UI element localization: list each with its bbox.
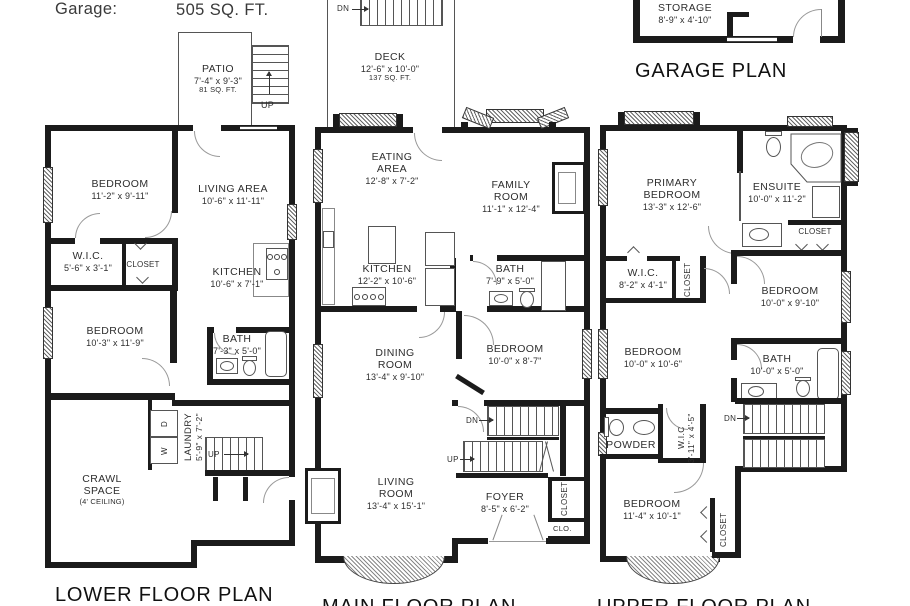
window [240,126,277,130]
wall [820,36,845,43]
wall [45,393,175,400]
stair-rail [487,437,559,440]
fridge [425,232,455,266]
wall [456,311,462,359]
closet-door-icon [816,238,829,251]
room-dims: 13'-3" x 12'-6" [636,202,708,212]
burner-icon [274,269,280,275]
door-arc [464,315,494,345]
room-name: BATH [741,354,813,366]
room-dims: 10'-6" x 7'-1" [206,279,268,289]
window [314,345,322,397]
door-arc [737,256,765,284]
room-name: BEDROOM [79,326,151,338]
wall [396,114,403,127]
stairs-up-label: UP [208,450,220,459]
door-arc [704,268,730,294]
door-arc [145,211,172,238]
wall [243,477,248,501]
bay-window [625,112,693,124]
room-label-wic: W.I.C. 8'-2" x 4'-1" [607,268,679,290]
wall [289,500,295,546]
room-dims: 11'-1" x 12'-4" [473,204,549,214]
bay-window [487,110,543,122]
wall [45,285,178,291]
room-name: FOYER [469,492,541,504]
room-name: BEDROOM [617,347,689,359]
wall [735,250,847,256]
wall [710,498,715,552]
room-name: BEDROOM [754,286,826,298]
room-name: PATIO [182,64,254,76]
room-dims: 8'-5" x 6'-2" [469,504,541,514]
wall [548,477,588,481]
window [583,330,591,378]
wall [315,306,417,312]
bathtub [817,348,839,400]
room-label-bath: BATH 7'-9" x 5'-0" [474,264,546,286]
staircase [743,439,825,468]
washer-label: W [160,443,169,459]
sink-basin [220,361,234,371]
room-label-dining-room: DINING ROOM 13'-4" x 9'-10" [359,348,431,382]
room-dims: 10'-0" x 9'-10" [754,298,826,308]
staircase [743,404,825,434]
plan-title-upper: UPPER FLOOR PLAN [597,596,811,606]
room-note: 81 SQ. FT. [182,86,254,94]
room-note: (4' CEILING) [66,498,138,506]
room-dims: 8'-9" x 4'-10" [649,15,721,25]
room-label-laundry: LAUNDRY [183,406,194,468]
room-label-foyer: FOYER 8'-5" x 6'-2" [469,492,541,514]
door-arc [263,477,289,503]
closet-door-icon [627,246,640,259]
room-label-patio: PATIO 7'-4" x 9'-3" 81 SQ. FT. [182,64,254,94]
wall [191,540,295,546]
stairs-dn-label: DN [466,416,478,425]
plan-title-main: MAIN FLOOR PLAN [322,596,516,606]
room-label-closet: CLOSET [683,261,692,299]
door-opening [473,255,497,261]
room-label-deck: DECK 12'-6" x 10'-0" 137 SQ. FT. [354,52,426,82]
room-label-closet: CLOSET [560,482,569,516]
up-arrow-icon [460,459,474,460]
wall [456,473,548,478]
burner-icon [362,294,368,300]
room-dims: 13'-4" x 15'-1" [360,501,432,511]
corner-tub [790,133,842,183]
stove [266,248,288,280]
window [599,150,607,205]
room-label-closet: CLOSET [789,228,841,237]
room-name: KITCHEN [206,267,268,279]
room-name: LIVING AREA [195,184,271,196]
wall [207,379,295,385]
wall [455,374,485,395]
staircase [463,441,543,472]
wall [845,181,858,186]
dn-arrow-icon [352,9,368,10]
room-dims: 12'-8" x 7'-2" [356,176,428,186]
up-arrow-icon [269,72,270,94]
room-name: ENSUITE [741,182,813,194]
wall [712,552,741,558]
toilet-tank [765,131,782,136]
closet-door-icon [136,271,149,284]
wall [600,454,662,459]
wall [213,477,218,501]
room-label-bedroom: BEDROOM 10'-0" x 10'-6" [617,347,689,369]
room-name: CLOSET [789,228,841,237]
fireplace-insert [311,478,335,514]
wall [461,122,468,132]
room-label-eating-area: EATING AREA 12'-8" x 7'-2" [356,152,428,186]
room-dims: 8'-2" x 4'-1" [607,280,679,290]
room-label-ensuite: ENSUITE 10'-0" x 11'-2" [741,182,813,204]
wall [289,125,295,477]
room-label-living-area: LIVING AREA 10'-6" x 11'-11" [195,184,271,206]
kitchen-island [368,226,396,264]
sink-basin [748,386,764,397]
room-dims: 10'-0" x 8'-7" [479,356,551,366]
wall [170,291,177,363]
room-dims: 7'-9" x 5'-0" [474,276,546,286]
wall [205,470,295,476]
burner-icon [370,294,376,300]
window [44,308,52,358]
room-name: BEDROOM [84,179,156,191]
room-label-family-room: FAMILY ROOM 11'-1" x 12'-4" [473,180,549,214]
room-name: CRAWL [66,474,138,486]
room-name: W.I.C. [607,268,679,280]
room-label-kitchen: KITCHEN 10'-6" x 7'-1" [206,267,268,289]
burner-icon [267,254,273,260]
pantry [425,268,455,306]
room-label-bath: BATH 7'-3" x 5'-0" [212,334,262,356]
room-label-closet: CLOSET [107,261,179,270]
room-dims: 10'-0" x 11'-2" [741,194,813,204]
dn-arrow-icon [737,418,749,419]
wall [735,338,847,344]
room-label-powder: POWDER [595,440,667,452]
floorplan-canvas: { "colors": {"wall": "#1b1b1b", "backgro… [0,0,910,606]
room-note: 137 SQ. FT. [354,74,426,82]
room-name: KITCHEN [351,264,423,276]
wall [600,298,706,303]
sink [323,231,334,248]
room-label-kitchen: KITCHEN 12'-2" x 10'-6" [351,264,423,286]
room-name: LIVING ROOM [360,477,432,501]
stairs-up-label: UP [261,100,274,110]
staircase [360,0,443,26]
room-name: EATING AREA [356,152,428,176]
room-name: FAMILY ROOM [473,180,549,204]
room-label-bedroom: BEDROOM 11'-2" x 9'-11" [84,179,156,201]
door-arc [674,463,704,493]
room-dims-laundry: 5'-9" x 7'-2" [194,406,204,468]
shower [812,186,840,218]
toilet [766,137,781,157]
room-name: STORAGE [649,3,721,15]
window [842,352,850,394]
stairs-dn-label: DN [337,4,349,13]
wall [333,114,340,127]
room-name: CLOSET [107,261,179,270]
wall [618,112,625,125]
up-arrow-icon [224,454,248,455]
window [599,330,607,378]
window [788,117,832,126]
stairs-up-label: UP [447,455,459,464]
room-label-bedroom: BEDROOM 10'-0" x 8'-7" [479,344,551,366]
door-leaf [533,515,543,541]
wall [45,238,75,244]
room-name: PRIMARY [636,178,708,190]
wall [548,477,552,522]
wall [452,538,458,563]
room-label-clo: CLO. [553,524,572,533]
staircase [487,406,559,436]
garage-sqft: 505 SQ. FT. [176,1,268,20]
wall [315,556,345,563]
bow-window [626,556,720,584]
room-dims: 10'-6" x 11'-11" [195,196,271,206]
wall [548,536,588,540]
garage-heading: Garage: [55,0,117,19]
plan-title-garage: GARAGE PLAN [635,60,787,83]
room-label-bath: BATH 10'-0" x 5'-0" [741,354,813,376]
stair-break-line [545,441,554,471]
burner-icon [354,294,360,300]
room-dims: 13'-4" x 9'-10" [359,372,431,382]
wall [788,220,842,225]
sink-basin [494,294,508,303]
wall [737,131,743,173]
room-label-bedroom: BEDROOM 11'-4" x 10'-1" [616,499,688,521]
wall [700,404,706,462]
wall [727,12,749,17]
room-name: POWDER [595,440,667,452]
wall [560,406,566,476]
room-name: BATH [212,334,262,346]
door-arc [194,131,220,157]
room-name: BEDROOM [616,499,688,511]
window [44,168,52,222]
wall [45,562,197,568]
door-arc [75,213,100,238]
plan-title-lower: LOWER FLOOR PLAN [55,584,273,606]
door-leaf [492,515,502,541]
sink-basin [633,420,655,435]
room-label-bedroom: BEDROOM 10'-3" x 11'-9" [79,326,151,348]
toilet [796,380,810,397]
window [727,37,777,42]
dn-arrow-icon [479,420,493,421]
closet-door-icon [795,238,808,251]
room-label-storage: STORAGE 8'-9" x 4'-10" [649,3,721,25]
sink-basin [749,228,769,241]
window [845,133,858,181]
room-name: DINING ROOM [359,348,431,372]
window [314,150,322,202]
room-name: DECK [354,52,426,64]
door-opening [458,400,484,406]
room-label-wic: W.I.C [676,414,686,462]
wall [172,125,178,213]
wall [549,122,556,132]
door-sill [489,541,546,542]
door-arc [142,358,170,386]
stairs-dn-label: DN [724,414,736,423]
kitchen-counter [322,208,335,305]
burner-icon [274,254,280,260]
window [288,205,296,239]
toilet [243,360,256,376]
dryer-label: D [160,416,169,432]
bay-window [340,114,396,126]
room-label-bedroom: BEDROOM 10'-0" x 9'-10" [754,286,826,308]
bow-window [343,556,445,584]
room-dims: 10'-0" x 10'-6" [617,359,689,369]
wall [548,518,588,522]
door-arc [793,9,821,37]
room-dims: 11'-2" x 9'-11" [84,191,156,201]
toilet [520,291,534,308]
room-dims: 12'-2" x 10'-6" [351,276,423,286]
room-dims-wic: 3'-11" x 4'-5" [687,412,696,464]
room-name: BEDROOM [636,190,708,202]
wall [600,256,627,261]
fireplace-insert [558,172,576,204]
wall [731,338,737,360]
room-label-closet: CLOSET [719,510,728,550]
toilet [609,419,624,436]
room-dims: 10'-3" x 11'-9" [79,338,151,348]
room-label-primary-bedroom: PRIMARY BEDROOM 13'-3" x 12'-6" [636,178,708,212]
burner-icon [378,294,384,300]
room-label-living-room: LIVING ROOM 13'-4" x 15'-1" [360,477,432,511]
room-name: BATH [474,264,546,276]
wall [735,466,741,558]
room-name: BEDROOM [479,344,551,356]
room-dims: 10'-0" x 5'-0" [741,366,813,376]
wall [487,306,590,312]
wall [693,112,700,125]
door-leaf [821,9,822,37]
room-dims: 7'-3" x 5'-0" [212,346,262,356]
stove [352,287,386,306]
wall [600,408,662,414]
door-arc [419,312,445,338]
burner-icon [281,254,287,260]
window [842,272,850,322]
room-dims: 11'-4" x 10'-1" [616,511,688,521]
bathtub [265,331,287,377]
room-label-crawl-space: CRAWL SPACE (4' CEILING) [66,474,138,506]
room-name: SPACE [66,486,138,498]
